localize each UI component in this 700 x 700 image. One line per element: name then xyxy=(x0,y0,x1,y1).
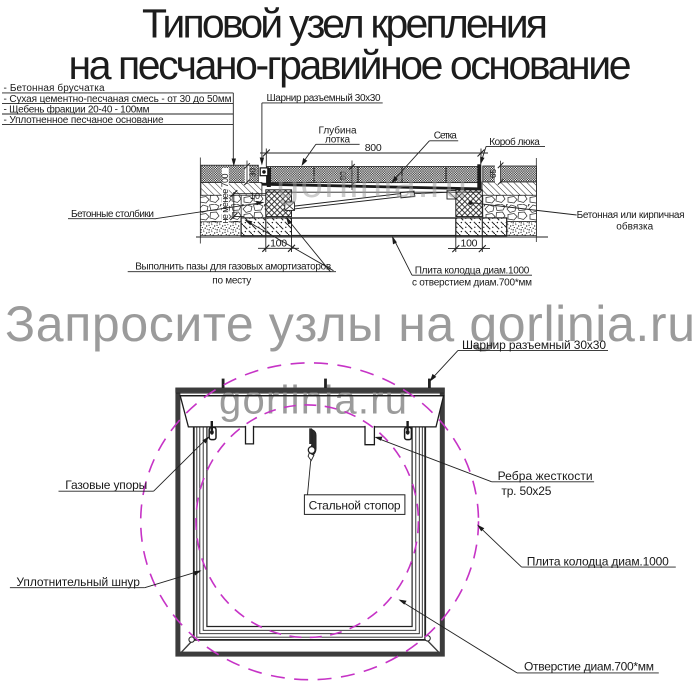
svg-text:с отверстием диам.700*мм: с отверстием диам.700*мм xyxy=(412,277,532,288)
svg-text:Шарнир разъемный 30х30: Шарнир разъемный 30х30 xyxy=(267,93,381,104)
svg-text:Типовой узел крепления: Типовой узел крепления xyxy=(142,1,548,47)
svg-text:10: 10 xyxy=(250,191,260,201)
svg-text:Стальной стопор: Стальной стопор xyxy=(309,499,401,513)
svg-text:Шарнир разъемный 30х30: Шарнир разъемный 30х30 xyxy=(462,338,606,352)
svg-text:на песчано-гравийное основание: на песчано-гравийное основание xyxy=(69,42,632,88)
svg-text:Ребра жесткости: Ребра жесткости xyxy=(498,469,593,483)
svg-text:30: 30 xyxy=(248,168,257,177)
svg-text:Газовые упоры: Газовые упоры xyxy=(65,478,147,492)
svg-text:100: 100 xyxy=(461,238,478,250)
svg-text:Выполнить пазы для газовых амо: Выполнить пазы для газовых амортизаторов xyxy=(135,261,331,272)
svg-text:Отверстие диам.700*мм: Отверстие диам.700*мм xyxy=(524,660,654,674)
svg-text:800: 800 xyxy=(365,142,382,154)
svg-text:gorlinia.ru: gorlinia.ru xyxy=(277,162,467,206)
svg-text:тр. 50х25: тр. 50х25 xyxy=(501,484,551,498)
svg-text:Бетонная или кирпичная: Бетонная или кирпичная xyxy=(577,210,685,221)
svg-text:65: 65 xyxy=(489,169,498,178)
svg-text:обвязка: обвязка xyxy=(616,221,653,233)
svg-text:Уплотнительный шнур: Уплотнительный шнур xyxy=(16,575,140,589)
svg-text:Бетонные столбики: Бетонные столбики xyxy=(71,208,154,220)
svg-text:Плита колодца диам.1000: Плита колодца диам.1000 xyxy=(415,265,530,276)
svg-text:по месту: по месту xyxy=(212,275,251,286)
svg-text:gorlinia.ru: gorlinia.ru xyxy=(219,379,407,423)
svg-text:Сетка: Сетка xyxy=(434,130,457,141)
svg-text:не менее 700: не менее 700 xyxy=(220,174,230,224)
svg-text:- Бетонная брусчатка: - Бетонная брусчатка xyxy=(4,82,105,94)
svg-text:Плита колодца диам.1000: Плита колодца диам.1000 xyxy=(527,554,669,568)
